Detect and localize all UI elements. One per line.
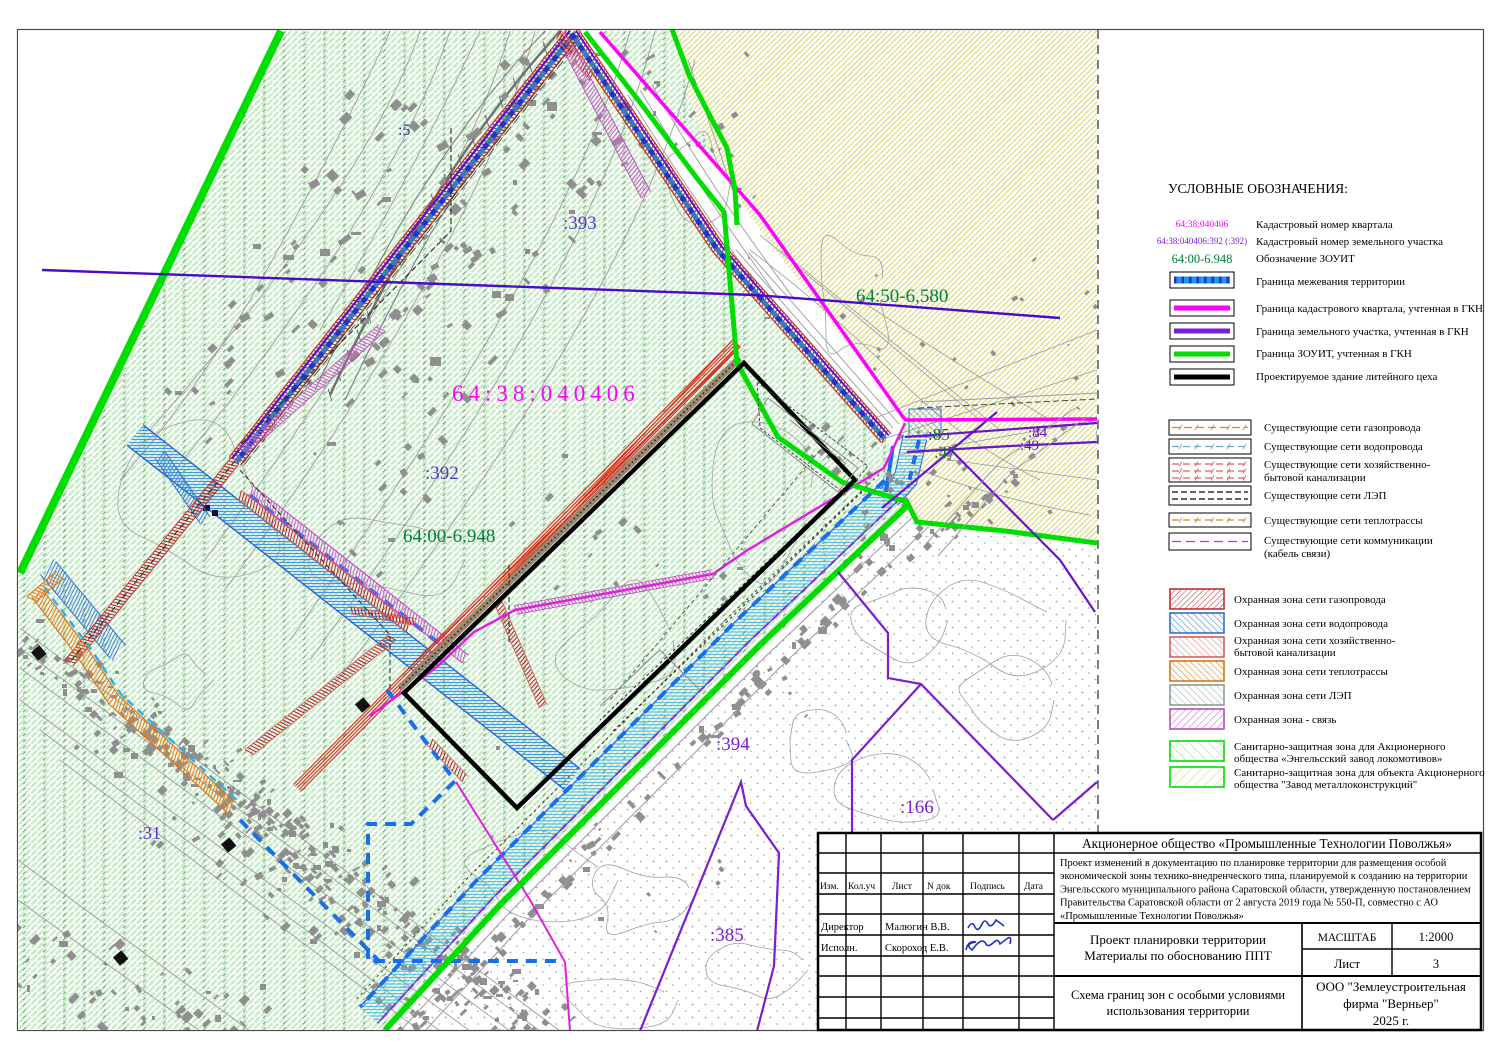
svg-text:N док: N док [927, 882, 951, 892]
svg-text:3: 3 [1433, 957, 1439, 971]
svg-text:общества "Завод металлоконстру: общества "Завод металлоконструкций" [1234, 779, 1417, 791]
svg-text:Существующие сети ЛЭП: Существующие сети ЛЭП [1264, 490, 1386, 502]
svg-text:УСЛОВНЫЕ ОБОЗНАЧЕНИЯ:: УСЛОВНЫЕ ОБОЗНАЧЕНИЯ: [1168, 181, 1348, 196]
svg-text:Подпись: Подпись [970, 882, 1006, 892]
svg-text:бытовой канализации: бытовой канализации [1234, 647, 1336, 659]
svg-text::5: :5 [398, 122, 410, 139]
svg-text:Кадастровый номер квартала: Кадастровый номер квартала [1256, 219, 1393, 231]
svg-text:Существующие сети хозяйственно: Существующие сети хозяйственно- [1264, 459, 1431, 471]
svg-text::47: :47 [934, 443, 956, 462]
svg-text::392: :392 [425, 463, 459, 484]
svg-text:Охранная зона - связь: Охранная зона - связь [1234, 714, 1336, 726]
svg-text:2025 г.: 2025 г. [1373, 1013, 1409, 1028]
svg-text:Проект планировки территории: Проект планировки территории [1090, 932, 1266, 947]
svg-text:МАСШТАБ: МАСШТАБ [1318, 932, 1377, 944]
svg-text:64:38:040406: 64:38:040406 [452, 381, 640, 406]
svg-text:Граница земельного участка, уч: Граница земельного участка, учтенная в Г… [1256, 326, 1469, 338]
svg-text::394: :394 [716, 734, 750, 755]
svg-text:Существующие сети коммуникации: Существующие сети коммуникации [1264, 535, 1433, 547]
svg-text:Исполн.: Исполн. [821, 943, 857, 954]
svg-text::166: :166 [900, 797, 934, 818]
svg-text:Материалы по обоснованию ППТ: Материалы по обоснованию ППТ [1084, 948, 1272, 963]
svg-text:1:2000: 1:2000 [1419, 930, 1454, 944]
svg-text:Схема границ зон с особыми усл: Схема границ зон с особыми условиями [1071, 988, 1285, 1002]
svg-text:использования территории: использования территории [1107, 1004, 1250, 1018]
svg-text:общества «Энгельсский завод ло: общества «Энгельсский завод локомотивов» [1234, 753, 1442, 765]
svg-text:64:50-6,580: 64:50-6,580 [856, 286, 948, 307]
svg-text:64:38:040406:392 (:392): 64:38:040406:392 (:392) [1157, 236, 1247, 246]
svg-text:Проектируемое здание литейного: Проектируемое здание литейного цеха [1256, 371, 1438, 383]
svg-text:Обозначение ЗОУИТ: Обозначение ЗОУИТ [1256, 253, 1355, 265]
svg-text:Граница межевания территории: Граница межевания территории [1256, 276, 1405, 288]
svg-text:Существующие сети газопровода: Существующие сети газопровода [1264, 422, 1421, 434]
svg-text:Энгельсского муниципального ра: Энгельсского муниципального района Сарат… [1060, 884, 1471, 895]
svg-text:Граница кадастрового квартала,: Граница кадастрового квартала, учтенная … [1256, 303, 1483, 315]
svg-text:фирма "Верньер": фирма "Верньер" [1343, 996, 1439, 1011]
svg-text:бытовой канализации: бытовой канализации [1264, 472, 1366, 484]
svg-text:(кабель связи): (кабель связи) [1264, 548, 1331, 560]
svg-text:Директор: Директор [821, 922, 864, 933]
svg-text:Дата: Дата [1024, 882, 1044, 892]
svg-text::85: :85 [928, 425, 950, 444]
svg-text:Охранная зона сети хозяйственн: Охранная зона сети хозяйственно- [1234, 635, 1396, 647]
svg-text:Проект изменений в документаци: Проект изменений в документацию по плани… [1060, 858, 1447, 869]
svg-text:Санитарно-защитная зона для Ак: Санитарно-защитная зона для Акционерного [1234, 741, 1446, 753]
svg-text:64:00-6.948: 64:00-6.948 [1172, 252, 1233, 266]
svg-text:Санитарно-защитная зона для об: Санитарно-защитная зона для объекта Акци… [1234, 767, 1485, 779]
svg-text:Граница ЗОУИТ, учтенная в ГКН: Граница ЗОУИТ, учтенная в ГКН [1256, 348, 1412, 360]
svg-text::385: :385 [710, 925, 744, 946]
svg-text::393: :393 [563, 213, 597, 234]
svg-text:Охранная зона сети водопровода: Охранная зона сети водопровода [1234, 618, 1388, 630]
svg-text:Изм.: Изм. [820, 882, 839, 892]
svg-text:Скороход Е.В.: Скороход Е.В. [885, 943, 949, 954]
svg-text:64:00-6.948: 64:00-6.948 [403, 526, 495, 547]
svg-text:Кадастровый номер земельного у: Кадастровый номер земельного участка [1256, 236, 1443, 248]
svg-text:Малюгин В.В.: Малюгин В.В. [885, 922, 950, 933]
svg-text:Правительства Саратовской обла: Правительства Саратовской области от 2 а… [1060, 898, 1438, 909]
svg-text:Существующие сети теплотрассы: Существующие сети теплотрассы [1264, 515, 1423, 527]
svg-text:Кол.уч: Кол.уч [848, 882, 875, 892]
svg-text:Охранная зона сети ЛЭП: Охранная зона сети ЛЭП [1234, 690, 1352, 702]
svg-text:Охранная зона сети газопровода: Охранная зона сети газопровода [1234, 594, 1386, 606]
svg-text:Лист: Лист [892, 882, 913, 892]
svg-text:Лист: Лист [1334, 957, 1361, 971]
svg-text:«Промышленные Технологии Повол: «Промышленные Технологии Поволжья» [1060, 911, 1244, 922]
svg-text:Охранная зона сети теплотрассы: Охранная зона сети теплотрассы [1234, 666, 1388, 678]
svg-text:ООО "Землеустроительная: ООО "Землеустроительная [1316, 979, 1466, 994]
svg-text::49: :49 [1020, 438, 1039, 454]
svg-text:экономической зоны технико-вне: экономической зоны технико-внедренческог… [1060, 871, 1468, 882]
svg-text::31: :31 [138, 823, 161, 843]
svg-text:64:38:040406: 64:38:040406 [1176, 220, 1229, 230]
svg-text:Существующие сети водопровода: Существующие сети водопровода [1264, 441, 1423, 453]
svg-text:Акционерное общество «Промышле: Акционерное общество «Промышленные Техно… [1082, 836, 1452, 851]
